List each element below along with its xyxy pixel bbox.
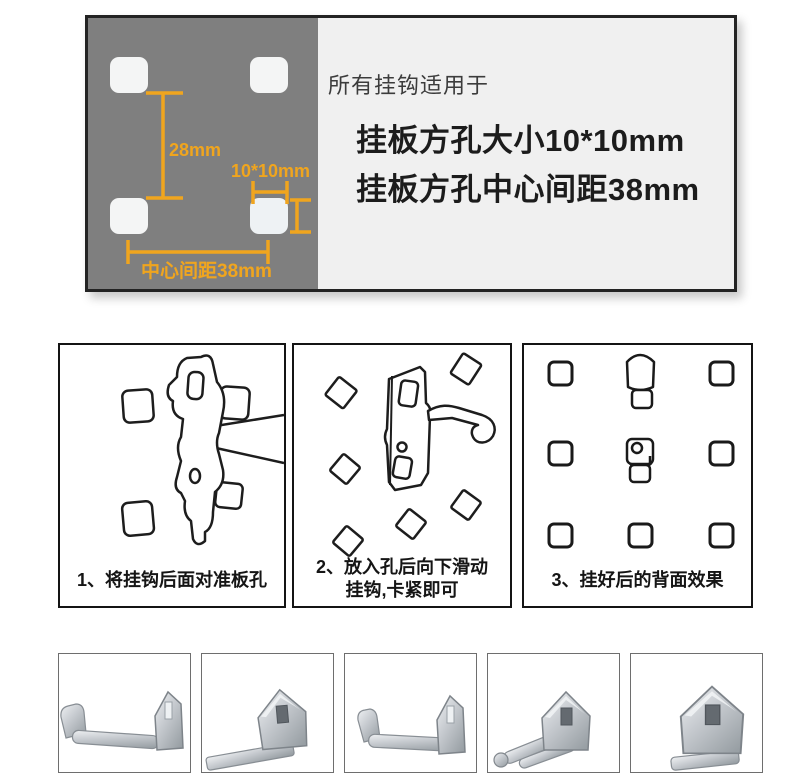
spec-line-center-distance: 挂板方孔中心间距38mm (356, 164, 700, 209)
pegboard-dimension-diagram: 28mm 10*10mm 中心间距38mm (88, 18, 318, 289)
step-box-1: 1、将挂钩后面对准板孔 (58, 343, 286, 608)
hook-photo (488, 654, 619, 773)
dim-hole-size-label: 10*10mm (231, 162, 310, 182)
hook-photo-5 (630, 653, 763, 773)
step2-caption-line2: 挂钩,卡紧即可 (294, 579, 510, 602)
step3-back-result-illustration (524, 345, 751, 606)
step1-hook-back-illustration (60, 345, 284, 606)
step3-caption-line: 3、挂好后的背面效果 (551, 570, 723, 590)
hook-photo (59, 654, 190, 773)
spec-text-panel: 所有挂钩适用于 挂板方孔大小10*10mm 挂板方孔中心间距38mm (318, 18, 734, 289)
step-box-2: 2、放入孔后向下滑动 挂钩,卡紧即可 (292, 343, 512, 608)
step3-caption: 3、挂好后的背面效果 (524, 569, 751, 592)
hook-photo-1 (58, 653, 191, 773)
spec-card: 28mm 10*10mm 中心间距38mm 所有挂钩适用于 挂板方孔大小10*1… (85, 15, 737, 292)
dim-center-distance-label: 中心间距38mm (141, 262, 272, 283)
spec-line-hole-size: 挂板方孔大小10*10mm (356, 115, 685, 160)
hook-photo-4 (487, 653, 620, 773)
step2-caption-line1: 2、放入孔后向下滑动 (294, 556, 510, 579)
hook-photo (345, 654, 476, 773)
step1-caption: 1、将挂钩后面对准板孔 (60, 569, 284, 592)
step1-caption-line: 1、将挂钩后面对准板孔 (77, 570, 267, 590)
hook-photo-3 (344, 653, 477, 773)
hook-photo-2 (201, 653, 334, 773)
step2-caption: 2、放入孔后向下滑动 挂钩,卡紧即可 (294, 556, 510, 602)
dim-row-spacing-label: 28mm (169, 141, 221, 161)
step-box-3: 3、挂好后的背面效果 (522, 343, 753, 608)
hook-photo (202, 654, 333, 773)
hook-photo (631, 654, 762, 773)
spec-heading: 所有挂钩适用于 (328, 68, 489, 100)
